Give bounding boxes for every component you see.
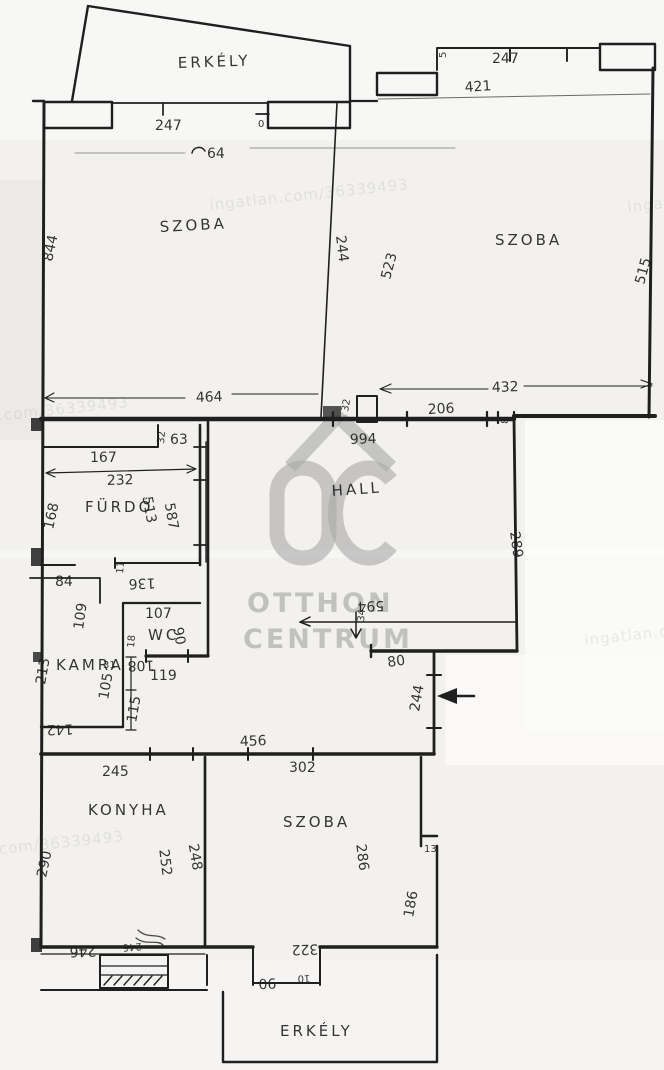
dim-label: 246 [122, 940, 142, 953]
room-label-szoba-bottom: SZOBA [283, 813, 350, 831]
dim-label: 32 [156, 431, 168, 445]
dim-label: 421 [464, 78, 492, 96]
dim-label: 286 [352, 843, 371, 872]
dim-label: 245 [102, 764, 129, 780]
dim-label: 456 [240, 733, 267, 750]
dim-label: 0 [258, 119, 264, 130]
dim-label: 5 [438, 52, 449, 58]
dim-label: 34 [356, 609, 368, 623]
dim-label: 247 [155, 118, 182, 134]
dim-label: 13 [424, 844, 437, 855]
dim-label: 11 [115, 561, 127, 575]
dim-label: 107 [145, 606, 172, 622]
dim-label: 206 [427, 401, 455, 418]
room-label-hall: HALL [331, 479, 382, 500]
dim-label: 232 [107, 472, 134, 489]
dim-label: 167 [90, 450, 117, 466]
wall-thickness-mark [31, 938, 42, 952]
dim-label: 8 [500, 418, 511, 424]
dim-label: 18 [126, 635, 138, 649]
dim-label: 80 [386, 653, 406, 671]
dim-label: 10 [297, 972, 310, 983]
room-label-erkely-top: ERKÉLY [177, 50, 250, 72]
dim-label: 302 [289, 760, 316, 776]
floor-plan-photo: ingatlan.com/36339493 ingatlan.com/36339… [0, 0, 664, 1070]
dim-label: 90 [258, 974, 276, 991]
dim-label: 994 [350, 431, 377, 448]
wall-thickness-mark [31, 548, 42, 566]
dim-label: 119 [150, 668, 177, 684]
floor-plan-canvas: ingatlan.com/36339493 ingatlan.com/36339… [0, 0, 664, 1070]
dim-label: 32 [340, 398, 353, 412]
dim-label: 247 [492, 51, 519, 67]
dim-label: 63 [170, 432, 188, 448]
room-label-szoba-top-right: SZOBA [495, 231, 562, 249]
dim-label: 246 [69, 942, 96, 959]
dim-label: 322 [291, 940, 318, 957]
dim-label: 464 [196, 389, 223, 406]
dim-label: 90 [169, 626, 188, 646]
dim-label: 432 [492, 379, 519, 396]
room-label-erkely-bottom: ERKÉLY [280, 1021, 353, 1040]
dim-label: 64 [207, 146, 225, 162]
dim-label: 84 [55, 574, 73, 590]
dim-label: 142 [46, 720, 73, 737]
dim-label: 136 [128, 574, 155, 591]
room-label-szoba-top-left: SZOBA [159, 215, 227, 236]
dim-label: 252 [155, 848, 174, 876]
room-label-konyha: KONYHA [88, 801, 169, 819]
dim-label: 244 [332, 235, 351, 264]
dim-label: 31 [103, 660, 116, 671]
